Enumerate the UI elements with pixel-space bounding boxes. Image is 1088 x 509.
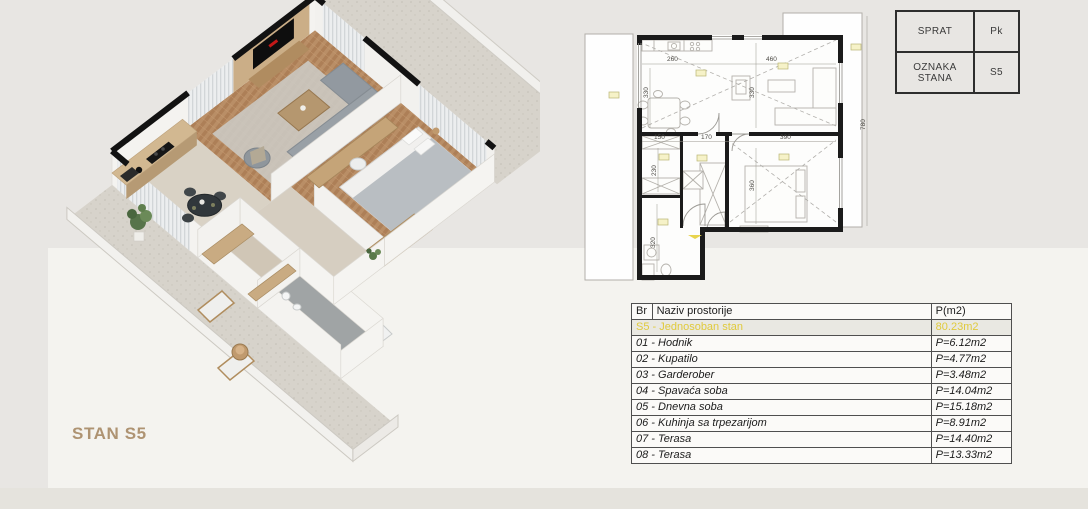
floorplan-sheet: STAN S5	[0, 0, 1088, 509]
dim-bath-h: 320	[650, 237, 657, 248]
room-area: P=13.33m2	[931, 448, 1011, 464]
room-name: 04 - Spavaća soba	[632, 384, 932, 400]
unit-id-value: S5	[974, 52, 1019, 93]
table-header-row: Br Naziv prostorije P(m2)	[632, 304, 1012, 320]
table-row: SPRAT Pk	[896, 11, 1019, 52]
room-area-table: Br Naziv prostorije P(m2) S5 - Jednosoba…	[631, 303, 1012, 464]
room-area: P=3.48m2	[931, 368, 1011, 384]
room-area: P=6.12m2	[931, 336, 1011, 352]
dim-gard-w: 150	[654, 134, 665, 141]
table-row: 07 - TerasaP=14.40m2	[632, 432, 1012, 448]
table-row: OZNAKA STANA S5	[896, 52, 1019, 93]
nightstand	[433, 128, 440, 135]
table-row: 04 - Spavaća sobaP=14.04m2	[632, 384, 1012, 400]
room-area: P=14.40m2	[931, 432, 1011, 448]
unit-caption: STAN S5	[72, 424, 147, 444]
room-name: 07 - Terasa	[632, 432, 932, 448]
plan-terrace-left	[585, 34, 633, 280]
unit-info-table: SPRAT Pk OZNAKA STANA S5	[895, 10, 1020, 94]
table-row: 03 - GarderoberP=3.48m2	[632, 368, 1012, 384]
room-name: 05 - Dnevna soba	[632, 400, 932, 416]
dim-kitchen-h: 330	[643, 87, 650, 98]
table-row: 01 - HodnikP=6.12m2	[632, 336, 1012, 352]
header-area: P(m2)	[931, 304, 1011, 320]
dining-table	[188, 194, 222, 216]
room-area: P=8.91m2	[931, 416, 1011, 432]
room-name: 01 - Hodnik	[632, 336, 932, 352]
table-row: 05 - Dnevna sobaP=15.18m2	[632, 400, 1012, 416]
dim-bedroom-h: 360	[749, 180, 756, 191]
apartment-2d-plan: 260 460 330 330 150 170 390 230 360 320 …	[580, 8, 890, 300]
background-bottom-strip	[0, 488, 1088, 509]
header-br: Br	[632, 304, 653, 320]
room-name: 02 - Kupatilo	[632, 352, 932, 368]
room-name: 03 - Garderober	[632, 368, 932, 384]
room-name: 08 - Terasa	[632, 448, 932, 464]
summary-area: 80.23m2	[931, 320, 1011, 336]
apartment-3d-render	[40, 0, 540, 490]
summary-name: S5 - Jednosoban stan	[632, 320, 932, 336]
floor-label: SPRAT	[896, 11, 974, 52]
dim-living-w: 460	[766, 56, 777, 63]
dim-gard-h: 230	[651, 165, 658, 176]
table-row: 06 - Kuhinja sa trpezarijomP=8.91m2	[632, 416, 1012, 432]
dim-bedroom-w: 390	[780, 134, 791, 141]
header-name: Naziv prostorije	[652, 304, 931, 320]
room-area: P=15.18m2	[931, 400, 1011, 416]
unit-id-label: OZNAKA STANA	[896, 52, 974, 93]
table-row: 08 - TerasaP=13.33m2	[632, 448, 1012, 464]
table-row: 02 - KupatiloP=4.77m2	[632, 352, 1012, 368]
floor-value: Pk	[974, 11, 1019, 52]
room-name: 06 - Kuhinja sa trpezarijom	[632, 416, 932, 432]
sink	[282, 292, 290, 300]
dim-kitchen-w: 260	[667, 56, 678, 63]
dim-terrace-h: 780	[860, 119, 867, 130]
dim-hall-w: 170	[701, 134, 712, 141]
dim-living-h: 330	[749, 87, 756, 98]
toilet	[293, 304, 301, 310]
summary-row: S5 - Jednosoban stan 80.23m2	[632, 320, 1012, 336]
room-area: P=14.04m2	[931, 384, 1011, 400]
room-area: P=4.77m2	[931, 352, 1011, 368]
